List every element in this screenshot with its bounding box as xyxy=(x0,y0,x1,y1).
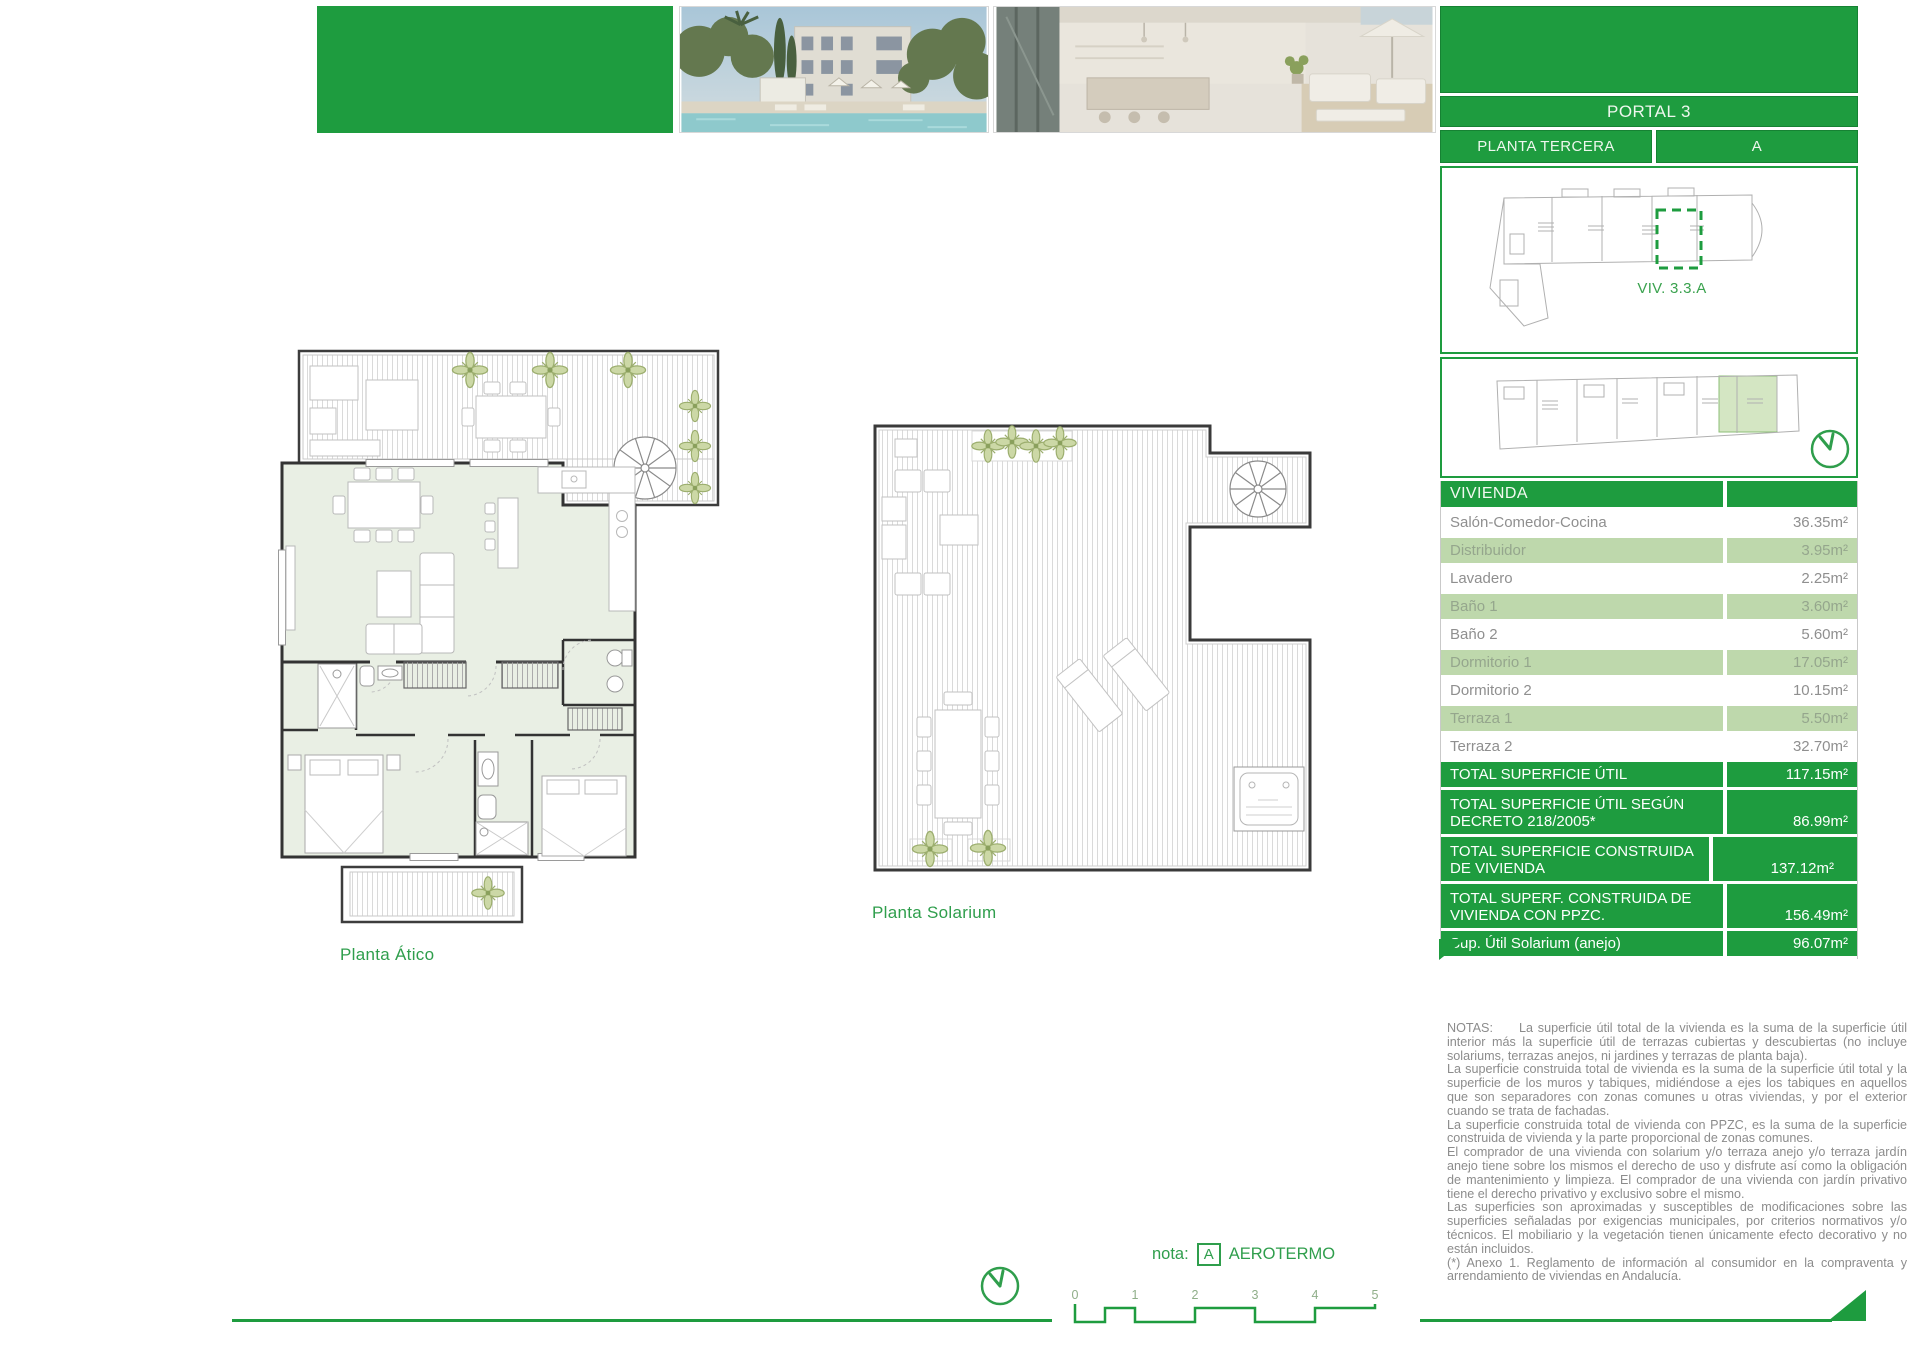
floor-header-bar: PLANTA TERCERA xyxy=(1440,130,1652,163)
exterior-pool-photo xyxy=(679,6,989,133)
table-row: Dormitorio 1 17.05m² xyxy=(1441,650,1857,678)
notes-paragraph: El comprador de una vivienda con solariu… xyxy=(1447,1146,1907,1201)
portal-label: PORTAL 3 xyxy=(1607,102,1691,122)
aerotermo-badge: A xyxy=(1197,1243,1221,1266)
notes-paragraph: (*) Anexo 1. Reglamento de información a… xyxy=(1447,1257,1907,1285)
table-row: Distribuidor 3.95m² xyxy=(1441,538,1857,566)
planta-atico-floorplan xyxy=(270,340,740,930)
aerotermo-note: nota: A AEROTERMO xyxy=(1152,1243,1335,1266)
unit-highlight-dashed-box xyxy=(1657,210,1701,268)
table-row: Salón-Comedor-Cocina 36.35m² xyxy=(1441,510,1857,538)
pool-photo-art xyxy=(680,7,988,132)
solarium-plants-top xyxy=(972,426,1076,462)
solarium-plan-label: Planta Solarium xyxy=(872,903,997,923)
terraza-1-balcony xyxy=(342,867,522,922)
bottom-rule-right xyxy=(1420,1319,1832,1322)
legal-notes: NOTAS:La superficie útil total de la viv… xyxy=(1447,1022,1907,1284)
scale-tick: 1 xyxy=(1132,1288,1139,1302)
nota-prefix: nota: xyxy=(1152,1245,1189,1264)
notes-paragraph: La superficie construida total de vivien… xyxy=(1447,1119,1907,1147)
unit-ref-label: VIV. 3.3.A xyxy=(1637,280,1706,297)
terrace-photo-art xyxy=(994,7,1435,132)
table-row: Terraza 2 32.70m² xyxy=(1441,734,1857,762)
table-header-row: VIVIENDA xyxy=(1441,481,1857,510)
atico-plan-label: Planta Ático xyxy=(340,945,434,965)
bottom-rule-left xyxy=(232,1319,1052,1322)
scale-bar: 0 1 2 3 4 5 xyxy=(1058,1288,1392,1332)
notes-heading: NOTAS: xyxy=(1447,1021,1493,1035)
portal-header-bar: PORTAL 3 xyxy=(1440,96,1858,127)
jacuzzi xyxy=(1234,767,1304,831)
bedroom-1-furniture xyxy=(288,755,400,853)
clock-icon xyxy=(1812,431,1848,467)
spiral-staircase-icon xyxy=(1230,461,1286,517)
unit-letter-bar: A xyxy=(1656,130,1858,163)
scale-tick: 0 xyxy=(1072,1288,1079,1302)
terrace-photo xyxy=(993,6,1436,133)
panel-top-band xyxy=(1440,6,1858,93)
table-section-header: VIVIENDA xyxy=(1441,481,1723,507)
table-row: Baño 2 5.60m² xyxy=(1441,622,1857,650)
table-total-row: TOTAL SUPERFICIE CONSTRUIDA DE VIVIENDA … xyxy=(1441,837,1857,884)
table-row: Terraza 1 5.50m² xyxy=(1441,706,1857,734)
brand-green-block xyxy=(317,6,673,133)
floorplan-sheet: PORTAL 3 PLANTA TERCERA A VIV. 3.3.A xyxy=(0,0,1920,1353)
scale-tick: 2 xyxy=(1192,1288,1199,1302)
scale-tick: 3 xyxy=(1252,1288,1259,1302)
bedroom-2-furniture xyxy=(542,776,626,856)
notes-paragraph: La superficie útil total de la vivienda … xyxy=(1447,1021,1907,1063)
aerotermo-label: AEROTERMO xyxy=(1229,1245,1335,1264)
building-strip-box xyxy=(1440,357,1858,478)
scale-tick: 5 xyxy=(1372,1288,1379,1302)
planta-solarium-floorplan xyxy=(860,415,1320,925)
table-total-row: Sup. Útil Solarium (anejo) 96.07m² xyxy=(1441,931,1857,959)
table-total-row: TOTAL SUPERF. CONSTRUIDA DE VIVIENDA CON… xyxy=(1441,884,1857,931)
clock-icon xyxy=(978,1264,1022,1308)
table-row: Dormitorio 2 10.15m² xyxy=(1441,678,1857,706)
area-table: VIVIENDA Salón-Comedor-Cocina 36.35m² Di… xyxy=(1440,481,1858,959)
site-key-box: VIV. 3.3.A xyxy=(1440,166,1858,354)
table-row: Lavadero 2.25m² xyxy=(1441,566,1857,594)
notes-paragraph: Las superficies son aproximadas y suscep… xyxy=(1447,1201,1907,1256)
floor-label: PLANTA TERCERA xyxy=(1477,138,1615,155)
building-strip-plan xyxy=(1442,359,1856,476)
highlighted-unit xyxy=(1719,376,1777,432)
bottom-rule-arrow xyxy=(1828,1288,1868,1324)
site-key-plan: VIV. 3.3.A xyxy=(1442,168,1856,352)
scale-tick: 4 xyxy=(1312,1288,1319,1302)
table-row: Baño 1 3.60m² xyxy=(1441,594,1857,622)
table-total-row: TOTAL SUPERFICIE ÚTIL 117.15m² xyxy=(1441,762,1857,790)
table-tail-triangle xyxy=(1438,938,1468,962)
notes-paragraph: La superficie construida total de vivien… xyxy=(1447,1063,1907,1118)
unit-letter: A xyxy=(1752,138,1762,155)
table-total-row: TOTAL SUPERFICIE ÚTIL SEGÚN DECRETO 218/… xyxy=(1441,790,1857,837)
